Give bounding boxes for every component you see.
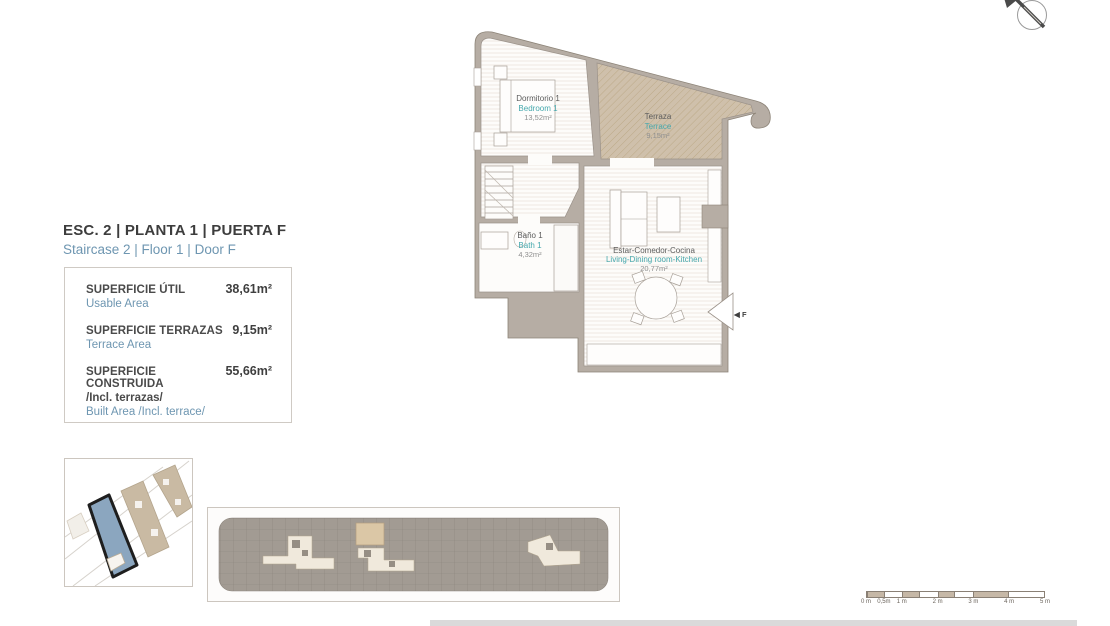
area-label-es: SUPERFICIE ÚTIL xyxy=(86,284,185,296)
scale-label: 5 m xyxy=(1040,599,1050,605)
scale-label: 4 m xyxy=(1004,599,1014,605)
staircase xyxy=(485,166,513,219)
entry-arrow-icon: ◀ xyxy=(733,310,741,319)
area-label-en: Terrace Area xyxy=(86,339,272,351)
balcony-rail xyxy=(587,344,721,365)
nightstand xyxy=(494,133,507,146)
room-label-bedroom-en: Bedroom 1 xyxy=(518,104,558,113)
area-value: 55,66m² xyxy=(225,364,272,378)
scale-label: 0 m xyxy=(861,599,871,605)
room-label-bath-en: Bath 1 xyxy=(518,241,542,250)
area-label-es: SUPERFICIE CONSTRUIDA xyxy=(86,366,225,390)
page-title: ESC. 2 | PLANTA 1 | PUERTA F xyxy=(63,222,383,239)
terrace-door-opening xyxy=(610,158,654,167)
site-building-court xyxy=(135,501,142,508)
site-building-court xyxy=(163,479,169,485)
room-label-terrace-en: Terrace xyxy=(645,122,672,131)
room-label-living-en: Living-Dining room-Kitchen xyxy=(606,255,702,264)
wall-pillar xyxy=(702,205,728,228)
room-label-bedroom-area: 13,52m² xyxy=(524,113,552,122)
overview-highlighted-unit xyxy=(356,523,384,545)
site-building-court xyxy=(151,529,158,536)
room-label-bedroom-es: Dormitorio 1 xyxy=(516,94,560,103)
area-value: 9,15m² xyxy=(232,323,272,337)
window xyxy=(474,68,481,86)
area-row-usable: SUPERFICIE ÚTIL 38,61m² Usable Area xyxy=(86,282,272,310)
room-label-bath-es: Baño 1 xyxy=(517,231,543,240)
room-label-living-area: 20,77m² xyxy=(640,264,668,273)
window xyxy=(474,132,481,150)
area-value: 38,61m² xyxy=(225,282,272,296)
armchair xyxy=(657,197,680,232)
area-label-en: Usable Area xyxy=(86,298,272,310)
sofa-back xyxy=(610,190,621,248)
scale-label: 3 m xyxy=(968,599,978,605)
scale-label: 1 m xyxy=(897,599,907,605)
scale-bar-segments xyxy=(866,591,1045,598)
terrace-floor xyxy=(597,63,753,159)
room-label-living-es: Estar-Comedor-Cocina xyxy=(613,246,695,255)
nightstand xyxy=(494,66,507,79)
scale-label: 2 m xyxy=(933,599,943,605)
scale-bar: 0 m 0,5m 1 m 2 m 3 m 4 m 5 m xyxy=(866,591,1045,609)
building-overview xyxy=(207,507,620,602)
areas-card: SUPERFICIE ÚTIL 38,61m² Usable Area SUPE… xyxy=(64,267,292,423)
site-building xyxy=(153,465,192,517)
room-label-terrace-es: Terraza xyxy=(645,112,672,121)
room-label-bath-area: 4,32m² xyxy=(518,250,542,259)
area-row-built: SUPERFICIE CONSTRUIDA 55,66m² /Incl. ter… xyxy=(86,364,272,418)
scale-label: 0,5m xyxy=(877,599,890,605)
floor-plan-drawing: Dormitorio 1 Bedroom 1 13,52m² Terraza T… xyxy=(470,20,782,385)
site-parcel xyxy=(67,513,89,539)
bedroom-door-opening xyxy=(528,155,552,165)
area-row-terrace: SUPERFICIE TERRAZAS 9,15m² Terrace Area xyxy=(86,323,272,351)
area-label-es: SUPERFICIE TERRAZAS xyxy=(86,325,223,337)
entry-door-label: F xyxy=(742,310,747,319)
bathroom-vanity xyxy=(481,232,508,249)
site-building-court xyxy=(175,499,181,505)
area-label-en: Built Area /Incl. terrace/ xyxy=(86,406,272,418)
page-subtitle: Staircase 2 | Floor 1 | Door F xyxy=(63,242,383,257)
site-plan xyxy=(64,458,193,587)
dining-table xyxy=(631,271,685,325)
bottom-strip xyxy=(430,620,1077,626)
shower xyxy=(554,225,578,291)
area-label-es-2: /Incl. terrazas/ xyxy=(86,392,272,404)
room-label-terrace-area: 9,15m² xyxy=(646,131,670,140)
header-block: ESC. 2 | PLANTA 1 | PUERTA F Staircase 2… xyxy=(63,222,383,257)
floor-plan-page: ESC. 2 | PLANTA 1 | PUERTA F Staircase 2… xyxy=(0,0,1110,626)
compass-north-icon xyxy=(1002,0,1060,42)
bathroom-door-opening xyxy=(518,216,540,225)
